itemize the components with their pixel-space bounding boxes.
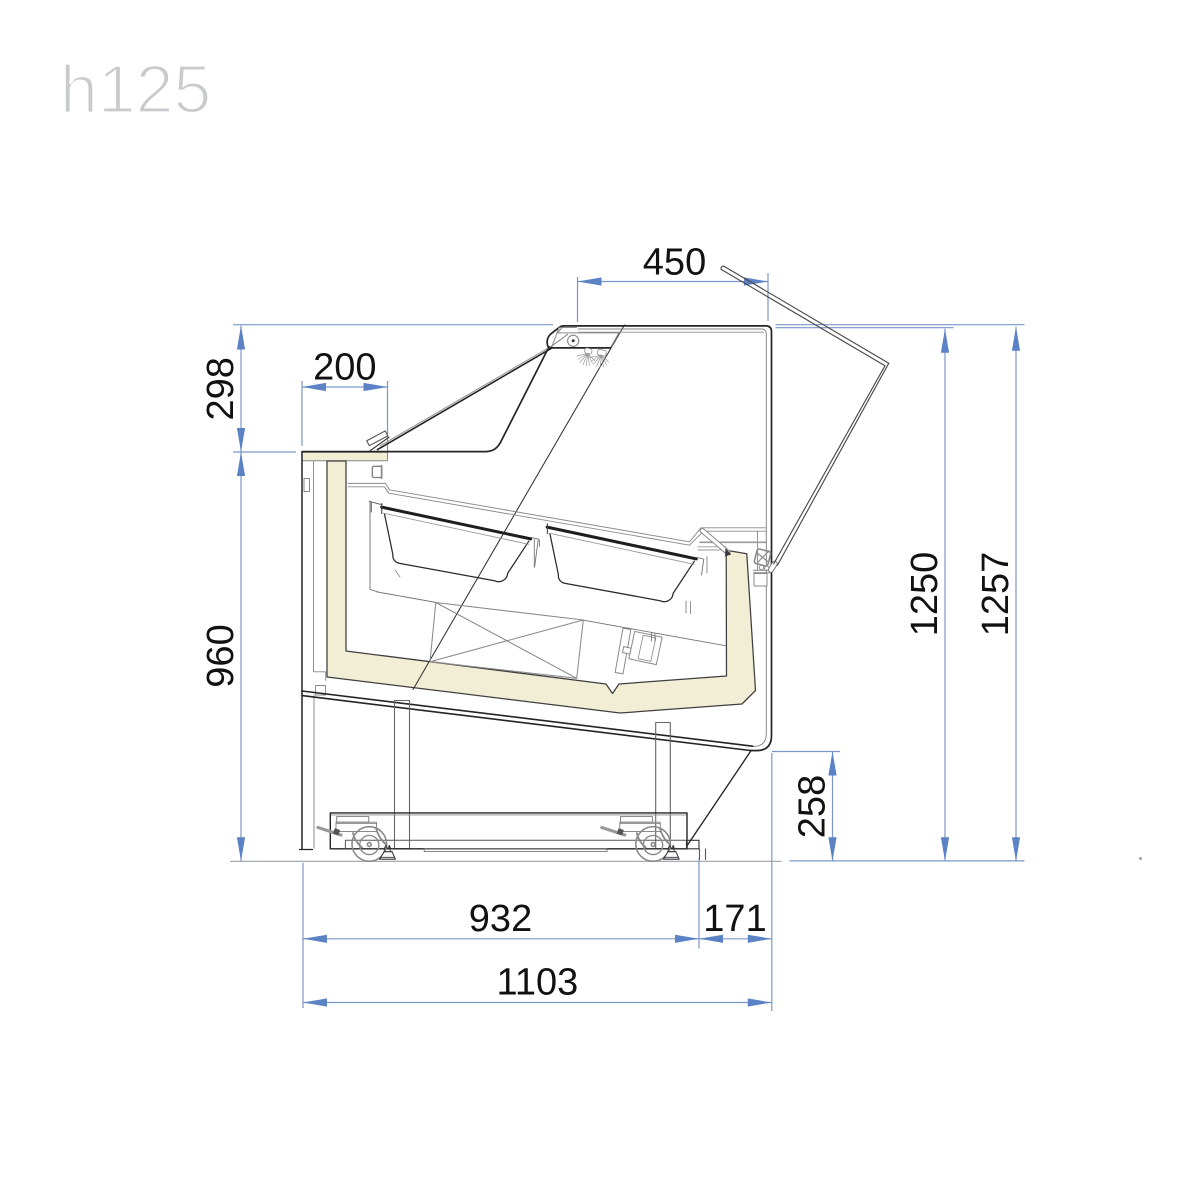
svg-text:960: 960: [200, 624, 242, 687]
svg-text:1257: 1257: [975, 552, 1017, 637]
svg-text:171: 171: [703, 898, 766, 940]
svg-text:258: 258: [792, 775, 834, 838]
svg-text:1250: 1250: [904, 552, 946, 637]
svg-text:200: 200: [313, 347, 376, 389]
svg-text:932: 932: [469, 898, 532, 940]
svg-text:h125: h125: [60, 52, 211, 128]
svg-text:1103: 1103: [497, 962, 579, 1004]
svg-text:450: 450: [643, 242, 706, 284]
svg-text:298: 298: [200, 357, 242, 420]
